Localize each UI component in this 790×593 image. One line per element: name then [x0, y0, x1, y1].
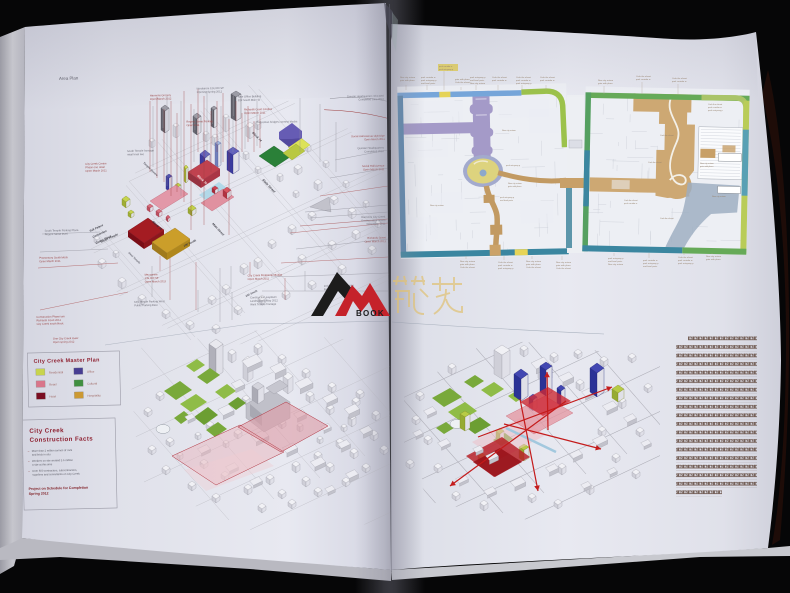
- svg-text:New city entran: New city entran: [460, 260, 476, 263]
- svg-text:New city entran: New city entran: [706, 255, 722, 258]
- svg-text:Open March 2011: Open March 2011: [39, 259, 61, 263]
- svg-text:Curb the elevat: Curb the elevat: [660, 217, 674, 220]
- svg-text:Regent Street level: Regent Street level: [45, 232, 68, 236]
- svg-text:park entryway p: park entryway p: [506, 164, 521, 167]
- svg-text:Curb the elevat: Curb the elevat: [678, 256, 693, 259]
- svg-text:and level parts: and level parts: [500, 199, 513, 202]
- svg-text:Open March 2011: Open March 2011: [248, 276, 270, 280]
- svg-text:New city entran: New city entran: [556, 261, 572, 264]
- svg-text:Curb the elevat: Curb the elevat: [460, 266, 475, 269]
- svg-text:a site at this time: a site at this time: [32, 462, 53, 466]
- svg-text:West Temple frontage: West Temple frontage: [250, 302, 277, 307]
- svg-text:Hotel: Hotel: [49, 394, 56, 398]
- svg-text:Curb the elevat: Curb the elevat: [708, 103, 723, 106]
- svg-text:New city entran: New city entran: [508, 182, 522, 185]
- svg-text:gate with plaza: gate with plaza: [556, 264, 571, 267]
- svg-text:gate with plaza: gate with plaza: [508, 185, 522, 188]
- svg-text:park entryway p: park entryway p: [498, 267, 514, 270]
- svg-text:gate with plaza: gate with plaza: [706, 258, 721, 261]
- svg-text:Open spring 2012: Open spring 2012: [53, 340, 75, 344]
- svg-text:New city entran: New city entran: [502, 129, 516, 132]
- svg-text:New city entran: New city entran: [608, 263, 624, 266]
- svg-text:New city entran: New city entran: [430, 204, 444, 207]
- svg-text:park entryway p: park entryway p: [500, 196, 515, 199]
- svg-text:Retail: Retail: [49, 382, 57, 386]
- svg-text:Regent Street Parking: Regent Street Parking: [186, 119, 213, 124]
- svg-text:park corridor w: park corridor w: [643, 259, 658, 262]
- svg-text:gate with plaza: gate with plaza: [700, 165, 714, 168]
- svg-text:Cultural: Cultural: [87, 381, 97, 385]
- svg-text:Spring 2012: Spring 2012: [29, 491, 49, 495]
- svg-text:retail level two: retail level two: [127, 152, 145, 156]
- svg-text:BOOK: BOOK: [356, 309, 385, 318]
- svg-text:gate with plaza: gate with plaza: [460, 263, 475, 266]
- svg-text:New city entran: New city entran: [712, 195, 726, 198]
- svg-text:Residential: Residential: [49, 370, 64, 374]
- svg-text:park entryway p: park entryway p: [643, 262, 659, 265]
- svg-text:Hospitality: Hospitality: [87, 393, 101, 397]
- svg-text:and level parts: and level parts: [608, 260, 623, 263]
- svg-text:New city entran: New city entran: [700, 162, 714, 165]
- svg-text:Curb the elevat: Curb the elevat: [648, 161, 662, 164]
- svg-text:and level parts: and level parts: [643, 265, 658, 268]
- svg-text:Open March 2011: Open March 2011: [244, 111, 266, 115]
- svg-text:park entryway p: park entryway p: [708, 109, 724, 112]
- svg-text:park corridor w: park corridor w: [498, 264, 513, 267]
- svg-text:Open March 2011: Open March 2011: [85, 168, 107, 172]
- svg-text:and brick in situ: and brick in situ: [32, 452, 51, 456]
- svg-text:Public Parking East: Public Parking East: [134, 303, 158, 307]
- svg-text:New city entran: New city entran: [526, 260, 542, 263]
- svg-text:Curb the elevat: Curb the elevat: [660, 134, 674, 137]
- svg-text:City Creek south block: City Creek south block: [37, 321, 65, 326]
- svg-text:park corridor w: park corridor w: [678, 259, 693, 262]
- svg-text:park entryway p: park entryway p: [678, 262, 694, 265]
- svg-text:gate with plaza: gate with plaza: [526, 263, 541, 266]
- svg-text:park corridor w: park corridor w: [708, 106, 722, 109]
- svg-text:Open 2011: Open 2011: [186, 123, 200, 127]
- svg-text:park entryway p: park entryway p: [608, 257, 624, 260]
- svg-text:City Creek: City Creek: [29, 427, 64, 435]
- svg-text:Curb the elevat: Curb the elevat: [498, 261, 513, 264]
- svg-text:Curb the elevat: Curb the elevat: [556, 267, 571, 270]
- svg-text:park corridor w: park corridor w: [624, 203, 638, 205]
- svg-text:Curb the elevat: Curb the elevat: [526, 266, 541, 269]
- svg-text:Construction Facts: Construction Facts: [29, 435, 93, 443]
- svg-text:Office: Office: [87, 370, 95, 374]
- svg-text:Curb the elevat: Curb the elevat: [624, 199, 638, 202]
- svg-text:Open March 2011: Open March 2011: [145, 279, 167, 283]
